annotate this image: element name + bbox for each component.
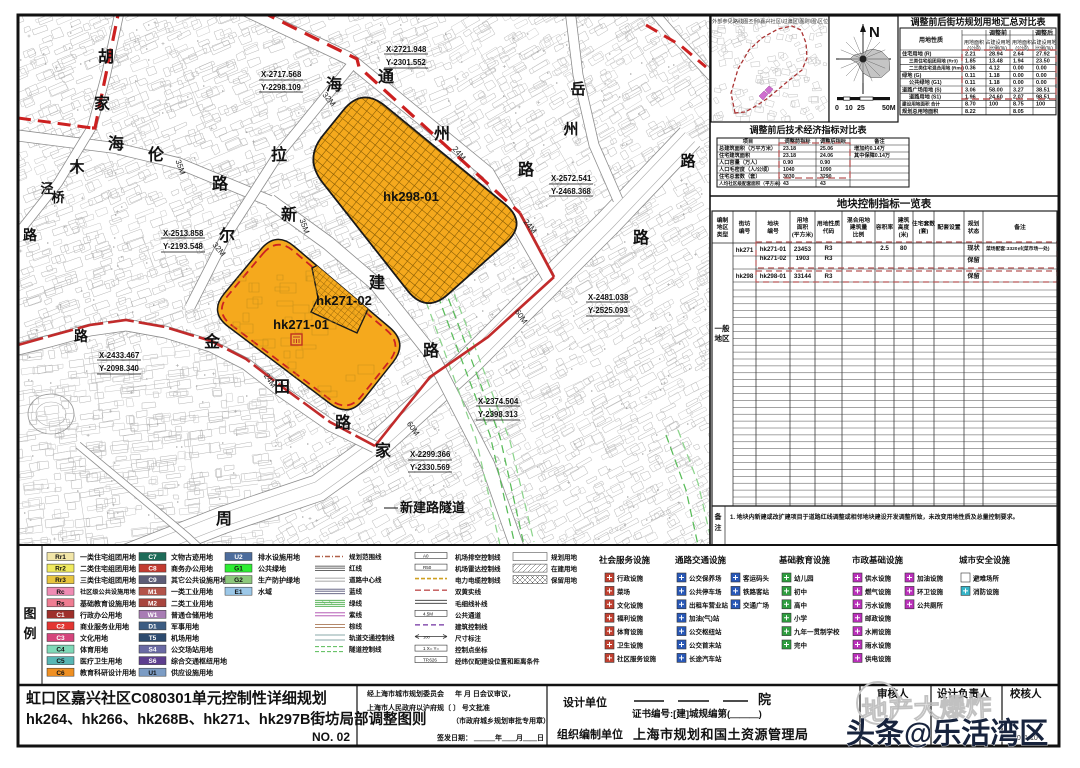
svg-text:公交保养场: 公交保养场 [689, 574, 722, 583]
svg-text:紫线: 紫线 [349, 610, 363, 619]
svg-text:体育设施: 体育设施 [617, 627, 644, 636]
svg-text:社区级公共设施用地: 社区级公共设施用地 [79, 588, 136, 596]
svg-text:hk271-01: hk271-01 [760, 246, 787, 253]
svg-text:0.90: 0.90 [820, 160, 830, 166]
svg-text:M2: M2 [148, 600, 157, 607]
svg-text:R3: R3 [825, 245, 833, 252]
svg-text:25.06: 25.06 [820, 146, 833, 152]
svg-text:38.51: 38.51 [1036, 87, 1050, 93]
svg-text:3.27: 3.27 [1013, 87, 1024, 93]
svg-text:道路广场用地 (S): 道路广场用地 (S) [902, 85, 942, 93]
svg-text:教育科研设计用地: 教育科研设计用地 [79, 668, 136, 677]
svg-text:C3: C3 [56, 635, 65, 642]
svg-text:供水设施: 供水设施 [864, 574, 892, 583]
svg-text:备注: 备注 [1013, 223, 1026, 231]
svg-text:地区: 地区 [715, 333, 730, 343]
svg-text:C5: C5 [56, 658, 65, 665]
svg-text:经纬仪配建设位置和距离条件: 经纬仪配建设位置和距离条件 [455, 657, 540, 666]
svg-text:0.11: 0.11 [965, 80, 975, 86]
svg-text:住宅套数: 住宅套数 [912, 220, 935, 228]
svg-text:Y-2525.093: Y-2525.093 [588, 306, 629, 315]
svg-text:绿线: 绿线 [349, 598, 363, 607]
svg-text:R3: R3 [825, 273, 833, 280]
svg-text:(平方米): (平方米) [792, 230, 813, 238]
svg-text:80: 80 [900, 245, 907, 252]
svg-text:8.70: 8.70 [965, 102, 976, 108]
svg-text:规划总用地面积: 规划总用地面积 [902, 107, 939, 115]
svg-text:建设用地面积 合计: 建设用地面积 合计 [901, 101, 940, 108]
svg-text:二三类住宅混合用地 (Rmr): 二三类住宅混合用地 (Rmr) [909, 65, 964, 72]
svg-text:Y-2330.569: Y-2330.569 [410, 463, 451, 472]
svg-text:公交场站用地: 公交场站用地 [171, 645, 213, 654]
svg-text:行政设施: 行政设施 [616, 574, 644, 583]
svg-text:X-2433.467: X-2433.467 [99, 351, 139, 360]
svg-text:客运码头: 客运码头 [742, 574, 770, 583]
svg-text:(米): (米) [899, 230, 909, 238]
svg-text:27.92: 27.92 [1036, 51, 1050, 57]
svg-text:调整后: 调整后 [1035, 29, 1053, 37]
svg-text:公共停车场: 公共停车场 [689, 587, 722, 596]
svg-text:hk298: hk298 [736, 273, 754, 280]
svg-text:三类住宅组团用地 (Rr3): 三类住宅组团用地 (Rr3) [909, 58, 958, 65]
svg-text:红线: 红线 [349, 564, 363, 573]
svg-text:编号: 编号 [767, 227, 779, 235]
svg-text:综合交通枢纽用地: 综合交通枢纽用地 [171, 657, 227, 666]
svg-text:X-2513.858: X-2513.858 [163, 229, 204, 238]
svg-text:1. 地块内新建或改扩建项目于道路红线调整或相邻地块建设开发: 1. 地块内新建或改扩建项目于道路红线调整或相邻地块建设开发调整所致，未改变用地… [730, 513, 1019, 521]
svg-text:院: 院 [758, 692, 771, 707]
svg-text:1.85: 1.85 [965, 59, 976, 65]
svg-text:住宅建筑面积: 住宅建筑面积 [719, 151, 751, 159]
svg-text:蓝线: 蓝线 [349, 587, 363, 596]
svg-text:调整前后街坊规划用地汇总对比表: 调整前后街坊规划用地汇总对比表 [910, 16, 1046, 27]
svg-text:机场雷达控制线: 机场雷达控制线 [455, 564, 501, 573]
svg-text:hk264、hk266、hk268B、hk271、hk297: hk264、hk266、hk268B、hk271、hk297B街坊局部调整图则 [26, 710, 427, 728]
svg-text:岳: 岳 [570, 80, 585, 98]
svg-text:人均社区级配套面积（平方米）: 人均社区级配套面积（平方米） [718, 180, 783, 187]
svg-text:建筑控制线: 建筑控制线 [454, 622, 488, 631]
svg-text:占建设用地: 占建设用地 [985, 39, 1010, 46]
svg-text:幼儿园: 幼儿园 [794, 574, 814, 583]
svg-text:环卫设施: 环卫设施 [917, 587, 944, 596]
svg-text:街坊: 街坊 [738, 220, 751, 228]
svg-text:0.00: 0.00 [1036, 73, 1047, 79]
svg-text:23.50: 23.50 [1036, 59, 1050, 65]
svg-text:路: 路 [74, 328, 89, 344]
svg-text:比例: 比例 [853, 230, 865, 238]
svg-text:行政办公用地: 行政办公用地 [79, 610, 122, 619]
svg-text:供应设施用地: 供应设施用地 [170, 668, 213, 677]
svg-text:10: 10 [845, 105, 853, 112]
svg-text:调整前: 调整前 [989, 29, 1007, 37]
svg-text:规划: 规划 [968, 220, 980, 228]
svg-text:3030: 3030 [783, 174, 795, 180]
svg-text:1 X= Y=: 1 X= Y= [423, 646, 440, 651]
svg-text:交通广场: 交通广场 [743, 600, 770, 609]
svg-text:路: 路 [423, 341, 440, 360]
svg-text:公共绿地 (G1): 公共绿地 (G1) [909, 78, 942, 86]
svg-text:普通仓储用地: 普通仓储用地 [171, 610, 213, 619]
svg-text:路: 路 [518, 160, 535, 179]
svg-text:出租车营业站: 出租车营业站 [689, 600, 729, 609]
svg-text:总建筑面积（万平方米）: 总建筑面积（万平方米） [719, 144, 776, 152]
svg-text:（市政府城乡规划审批专用章）: （市政府城乡规划审批专用章） [452, 716, 550, 725]
svg-text:路: 路 [23, 227, 38, 243]
svg-text:菜场: 菜场 [616, 587, 631, 596]
svg-text:1.18: 1.18 [989, 73, 1000, 79]
svg-text:0: 0 [835, 105, 839, 112]
svg-text:建筑: 建筑 [897, 216, 910, 224]
svg-text:0.00: 0.00 [1013, 73, 1024, 79]
svg-text:尔: 尔 [219, 226, 235, 245]
svg-text:签发日期： ＿＿＿年＿＿月＿＿日: 签发日期： ＿＿＿年＿＿月＿＿日 [436, 733, 544, 742]
svg-text:S6: S6 [149, 658, 157, 665]
svg-text:4.5M: 4.5M [423, 611, 433, 616]
svg-text:现状: 现状 [967, 244, 980, 252]
svg-text:路: 路 [335, 413, 352, 432]
svg-text:容积率: 容积率 [875, 223, 894, 231]
svg-text:1040: 1040 [783, 167, 795, 173]
svg-text:D1: D1 [148, 624, 157, 631]
svg-text:hk271-01: hk271-01 [273, 317, 329, 332]
svg-text:建: 建 [369, 274, 385, 292]
svg-text:雨水设施: 雨水设施 [865, 641, 892, 650]
svg-text:拉: 拉 [271, 145, 287, 164]
svg-text:100: 100 [423, 635, 430, 640]
svg-text:3290: 3290 [820, 174, 832, 180]
svg-text:hk271-02: hk271-02 [760, 255, 787, 262]
svg-text:公共绿地: 公共绿地 [258, 564, 286, 573]
svg-text:43: 43 [783, 181, 789, 187]
svg-text:1.94: 1.94 [1013, 59, 1025, 65]
svg-text:二类住宅组团用地: 二类住宅组团用地 [80, 564, 136, 573]
svg-text:占建设用地: 占建设用地 [1031, 39, 1056, 46]
svg-text:一般: 一般 [715, 323, 730, 333]
svg-text:C2: C2 [56, 624, 65, 631]
svg-text:人口容量（万人）: 人口容量（万人） [719, 158, 761, 166]
svg-text:供电设施: 供电设施 [864, 654, 892, 663]
svg-text:家: 家 [94, 94, 111, 113]
svg-text:C4: C4 [56, 647, 65, 654]
svg-text:初中: 初中 [794, 587, 807, 596]
svg-text:25: 25 [857, 105, 865, 112]
svg-text:加油(气)站: 加油(气)站 [688, 614, 720, 623]
svg-text:hk271-02: hk271-02 [316, 293, 372, 308]
svg-text:43: 43 [820, 181, 826, 187]
svg-text:商务办公用地: 商务办公用地 [171, 564, 213, 573]
svg-text:文化设施: 文化设施 [616, 600, 644, 609]
svg-text:棕线: 棕线 [348, 621, 363, 630]
svg-text:隧道控制线: 隧道控制线 [349, 645, 382, 654]
svg-text:W1: W1 [148, 612, 158, 619]
svg-text:2.5: 2.5 [880, 245, 889, 252]
svg-text:在建用地: 在建用地 [551, 564, 578, 573]
svg-text:轨道交通控制线: 轨道交通控制线 [349, 633, 395, 642]
svg-text:C8: C8 [148, 566, 157, 573]
svg-text:备: 备 [714, 512, 723, 521]
svg-text:周: 周 [216, 510, 232, 528]
svg-text:机场用地: 机场用地 [171, 634, 199, 643]
svg-text:(套): (套) [919, 227, 929, 235]
svg-text:控制点坐标: 控制点坐标 [455, 645, 488, 654]
svg-text:高中: 高中 [794, 600, 807, 609]
svg-text:证书编号:[建]城规编第(＿＿＿): 证书编号:[建]城规编第(＿＿＿) [632, 708, 762, 720]
svg-text:C7: C7 [148, 554, 157, 561]
svg-text:消防设施: 消防设施 [973, 587, 1000, 596]
svg-text:TP,626: TP,626 [423, 658, 437, 663]
svg-text:NO. 02: NO. 02 [312, 730, 350, 744]
svg-text:13.48: 13.48 [989, 59, 1003, 65]
svg-text:23.18: 23.18 [783, 153, 796, 159]
svg-text:长途汽车站: 长途汽车站 [689, 654, 722, 663]
svg-text:Y-2098.340: Y-2098.340 [99, 364, 140, 373]
svg-text:E1: E1 [235, 589, 243, 596]
svg-text:面积: 面积 [797, 223, 809, 231]
svg-text:住宅总套数（套）: 住宅总套数（套） [719, 172, 761, 180]
svg-text:8.22: 8.22 [965, 109, 976, 115]
svg-text:社会服务设施: 社会服务设施 [598, 555, 651, 565]
svg-text:N: N [869, 24, 880, 41]
svg-text:Y-2301.552: Y-2301.552 [386, 58, 427, 67]
svg-text:1090: 1090 [820, 167, 832, 173]
svg-text:2.21: 2.21 [965, 51, 976, 57]
svg-text:文化用地: 文化用地 [80, 634, 108, 643]
svg-text:用地: 用地 [796, 216, 809, 224]
svg-text:Rs: Rs [56, 600, 65, 607]
svg-text:0.36: 0.36 [965, 66, 976, 72]
svg-text:基础教育设施用地: 基础教育设施用地 [79, 599, 136, 608]
svg-text:二类工业用地: 二类工业用地 [171, 599, 213, 608]
svg-text:50M: 50M [882, 105, 896, 112]
svg-text:高度: 高度 [898, 223, 910, 231]
svg-text:Rc: Rc [56, 589, 65, 596]
svg-text:编号: 编号 [739, 227, 751, 235]
svg-text:1903: 1903 [796, 255, 810, 262]
svg-text:公共通道: 公共通道 [455, 610, 482, 619]
svg-text:三类住宅组团用地: 三类住宅组团用地 [80, 576, 136, 585]
svg-text:胡: 胡 [98, 47, 114, 66]
svg-text:Y-2468.368: Y-2468.368 [551, 187, 592, 196]
svg-text:体育用地: 体育用地 [80, 645, 108, 654]
svg-text:加油设施: 加油设施 [916, 574, 944, 583]
svg-text:人口毛密度（人/公顷）: 人口毛密度（人/公顷） [719, 165, 772, 173]
svg-text:Y-2193.548: Y-2193.548 [163, 242, 204, 251]
svg-text:3.06: 3.06 [965, 87, 976, 93]
svg-text:组织编制单位: 组织编制单位 [557, 727, 623, 741]
svg-text:23.18: 23.18 [783, 146, 796, 152]
svg-text:2.64: 2.64 [1013, 51, 1025, 57]
svg-text:8.05: 8.05 [1013, 109, 1024, 115]
svg-text:0.90: 0.90 [783, 160, 793, 166]
svg-text:R50: R50 [423, 565, 432, 570]
svg-text:用地性质: 用地性质 [918, 36, 943, 44]
svg-text:海: 海 [108, 134, 124, 153]
svg-text:小学: 小学 [793, 614, 808, 623]
svg-text:Rr3: Rr3 [55, 577, 66, 584]
svg-text:军事用地: 军事用地 [171, 622, 199, 631]
svg-text:邮政设施: 邮政设施 [865, 614, 892, 623]
svg-text:0.00: 0.00 [1013, 66, 1024, 72]
svg-text:文物古迹用地: 文物古迹用地 [171, 553, 213, 562]
svg-text:绿地 (G): 绿地 (G) [902, 71, 922, 79]
svg-text:X-2374.504: X-2374.504 [478, 397, 519, 406]
svg-text:路: 路 [212, 174, 229, 193]
svg-text:58.00: 58.00 [989, 87, 1003, 93]
svg-text:用地性质: 用地性质 [816, 220, 840, 228]
svg-text:头条@乐活湾区: 头条@乐活湾区 [846, 716, 1048, 750]
svg-text:福利设施: 福利设施 [616, 614, 644, 623]
svg-text:8.75: 8.75 [1013, 102, 1024, 108]
svg-text:市政基础设施: 市政基础设施 [852, 555, 904, 565]
svg-text:状态: 状态 [968, 227, 980, 235]
svg-text:其它公共设施用地: 其它公共设施用地 [171, 576, 227, 585]
svg-text:配套设置: 配套设置 [937, 223, 960, 231]
svg-text:hk298-01: hk298-01 [760, 273, 787, 280]
svg-text:金: 金 [203, 332, 221, 351]
svg-text:电力电缆控制线: 电力电缆控制线 [455, 576, 501, 585]
svg-text:0.00: 0.00 [1036, 80, 1047, 86]
svg-text:编制: 编制 [717, 216, 729, 224]
svg-text:虹口区嘉兴社区C080301单元控制性详细规划: 虹口区嘉兴社区C080301单元控制性详细规划 [26, 689, 327, 707]
svg-text:地块: 地块 [767, 220, 779, 228]
svg-text:用地面积: 用地面积 [964, 39, 984, 46]
svg-text:地区: 地区 [717, 223, 729, 231]
svg-text:卫生设施: 卫生设施 [617, 641, 644, 650]
svg-text:机场排空控制线: 机场排空控制线 [455, 553, 501, 562]
svg-text:0.00: 0.00 [1013, 80, 1024, 86]
svg-text:毛细线补线: 毛细线补线 [455, 599, 488, 608]
svg-text:Rr1: Rr1 [55, 554, 66, 561]
svg-text:100: 100 [989, 102, 998, 108]
svg-text:地块控制指标一览表: 地块控制指标一览表 [837, 197, 932, 210]
svg-text:医疗卫生用地: 医疗卫生用地 [80, 657, 122, 666]
svg-text:水闸设施: 水闸设施 [865, 627, 892, 636]
svg-text:铁路客站: 铁路客站 [742, 587, 770, 596]
svg-text:通: 通 [378, 68, 394, 86]
svg-text:Y-2298.109: Y-2298.109 [261, 83, 302, 92]
svg-text:0.11: 0.11 [965, 73, 975, 79]
svg-text:24.06: 24.06 [820, 153, 833, 159]
svg-text:城市安全设施: 城市安全设施 [959, 555, 1011, 565]
svg-text:100: 100 [1036, 102, 1045, 108]
svg-text:图: 图 [23, 606, 36, 621]
svg-text:类型: 类型 [717, 230, 729, 238]
svg-text:通路交通设施: 通路交通设施 [675, 555, 727, 565]
svg-text:其中保障0.14万: 其中保障0.14万 [854, 151, 890, 159]
svg-text:完中: 完中 [794, 641, 807, 650]
svg-text:家: 家 [375, 441, 392, 460]
svg-text:设计单位: 设计单位 [563, 695, 607, 709]
svg-text:4.12: 4.12 [989, 66, 1000, 72]
svg-text:用地面积: 用地面积 [1012, 39, 1032, 46]
svg-text:混合用地: 混合用地 [847, 216, 870, 224]
svg-text:C1: C1 [56, 612, 65, 619]
svg-text:1.18: 1.18 [989, 80, 1000, 86]
svg-text:燃气设施: 燃气设施 [865, 587, 892, 596]
svg-text:A0: A0 [423, 554, 429, 559]
svg-text:公交首末站: 公交首末站 [689, 641, 722, 650]
svg-text:住宅用地 (R): 住宅用地 (R) [902, 49, 932, 57]
svg-text:G2: G2 [234, 577, 243, 584]
svg-text:一类工业用地: 一类工业用地 [171, 587, 213, 596]
svg-text:尺寸标注: 尺寸标注 [455, 634, 482, 643]
svg-text:道路中心线: 道路中心线 [349, 575, 382, 584]
svg-text:九年一贯制学校: 九年一贯制学校 [793, 627, 840, 636]
svg-text:污水设施: 污水设施 [865, 600, 892, 609]
svg-text:U1: U1 [148, 670, 157, 677]
svg-text:注: 注 [715, 523, 722, 532]
svg-text:公交枢纽站: 公交枢纽站 [689, 627, 722, 636]
svg-text:规划范围线: 规划范围线 [349, 552, 382, 561]
svg-text:双黄实线: 双黄实线 [455, 587, 482, 596]
svg-text:新: 新 [281, 205, 297, 224]
svg-text:上海市人民政府以沪府规〔 〕 号文批准: 上海市人民政府以沪府规〔 〕 号文批准 [367, 703, 490, 712]
svg-text:桥: 桥 [51, 190, 65, 205]
svg-text:路: 路 [633, 228, 650, 247]
svg-text:木: 木 [68, 158, 85, 176]
svg-text:路: 路 [680, 152, 696, 170]
svg-text:年 月 日会议审议，: 年 月 日会议审议， [455, 689, 515, 698]
svg-text:0.00: 0.00 [1036, 66, 1047, 72]
svg-text:C9: C9 [148, 577, 157, 584]
svg-text:C6: C6 [56, 670, 65, 677]
svg-text:T5: T5 [149, 635, 157, 642]
svg-text:X-2481.038: X-2481.038 [588, 293, 629, 302]
svg-text:Rr2: Rr2 [55, 566, 66, 573]
svg-text:hk298-01: hk298-01 [383, 189, 439, 204]
svg-text:一类住宅组团用地: 一类住宅组团用地 [80, 553, 136, 562]
svg-text:增加约0.14万: 增加约0.14万 [854, 144, 885, 152]
svg-text:X-2721.948: X-2721.948 [386, 45, 427, 54]
svg-text:公共厕所: 公共厕所 [917, 600, 944, 609]
svg-text:M1: M1 [148, 589, 157, 596]
svg-text:避难场所: 避难场所 [972, 574, 1000, 583]
svg-text:道路用地 (S1): 道路用地 (S1) [909, 93, 941, 101]
svg-text:经上海市城市规划委员会: 经上海市城市规划委员会 [367, 689, 445, 698]
svg-text:社区服务设施: 社区服务设施 [617, 654, 657, 663]
svg-text:排水设施用地: 排水设施用地 [258, 553, 300, 562]
svg-text:生产防护绿地: 生产防护绿地 [258, 576, 300, 585]
svg-text:X-2717.568: X-2717.568 [261, 70, 302, 79]
svg-text:伦: 伦 [148, 145, 165, 164]
svg-text:S4: S4 [149, 647, 157, 654]
svg-text:23453: 23453 [794, 246, 812, 253]
svg-text:州: 州 [562, 121, 578, 138]
svg-text:州: 州 [433, 125, 450, 143]
svg-text:保留: 保留 [966, 272, 979, 280]
svg-text:例: 例 [23, 626, 36, 641]
svg-text:X-2299.366: X-2299.366 [410, 450, 451, 459]
svg-text:上海市规划和国土资源管理局: 上海市规划和国土资源管理局 [633, 727, 809, 742]
svg-text:28.94: 28.94 [989, 51, 1004, 57]
svg-text:代码: 代码 [822, 227, 835, 235]
svg-text:菜场配套:3320㎡(菜市场一处): 菜场配套:3320㎡(菜市场一处) [985, 245, 1050, 252]
svg-text:保留: 保留 [966, 256, 979, 264]
svg-text:水域: 水域 [258, 587, 272, 596]
svg-text:建筑量: 建筑量 [849, 223, 868, 231]
svg-text:调整前后技术经济指标对比表: 调整前后技术经济指标对比表 [749, 124, 867, 135]
svg-text:R3: R3 [825, 255, 833, 262]
svg-text:33144: 33144 [794, 273, 812, 280]
svg-text:校核人: 校核人 [1010, 687, 1042, 700]
svg-text:Y-2398.313: Y-2398.313 [478, 410, 519, 419]
svg-text:X-2572.541: X-2572.541 [551, 174, 592, 183]
svg-text:新建路隧道: 新建路隧道 [400, 500, 465, 515]
svg-text:规划用地: 规划用地 [551, 553, 578, 562]
svg-text:基础教育设施: 基础教育设施 [778, 555, 831, 565]
svg-text:G1: G1 [234, 566, 243, 573]
svg-text:商业服务业用地: 商业服务业用地 [80, 622, 129, 631]
